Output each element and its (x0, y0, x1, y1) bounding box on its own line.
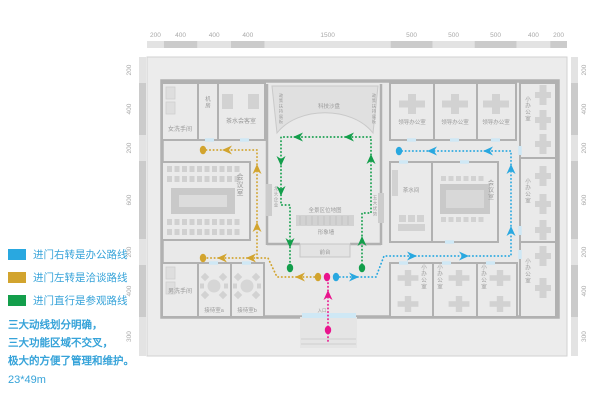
room-label-server_room: 机房 (205, 95, 211, 110)
floorplan-page: 2004004004001500500500500400200200200400… (0, 0, 600, 400)
seat (167, 166, 172, 172)
ruler-segment (571, 239, 578, 265)
room-label-tea_guest: 茶水会客室 (226, 117, 256, 125)
chair (449, 176, 454, 181)
seat (182, 229, 187, 235)
ruler-segment (550, 41, 567, 48)
seat (235, 229, 240, 235)
route-endpoint (325, 326, 331, 335)
ruler-segment (475, 41, 517, 48)
desk (497, 270, 503, 286)
room-label-men_wc: 男洗手间 (168, 287, 192, 295)
desk (535, 253, 551, 259)
desk (451, 94, 459, 114)
chair (449, 217, 454, 222)
ruler-segment (571, 161, 578, 239)
conference-table (446, 190, 484, 208)
chair (441, 176, 446, 181)
route-endpoint (333, 273, 339, 282)
seat (235, 219, 240, 225)
ruler-segment (571, 135, 578, 161)
seat (227, 219, 232, 225)
sofa (248, 94, 259, 109)
route-endpoint (315, 273, 321, 282)
dim-label-right: 400 (581, 103, 588, 114)
room-label-reception_a: 接待室a (204, 306, 225, 314)
room-label-tea_room: 茶水间 (403, 186, 420, 194)
desk (535, 227, 551, 233)
five-advantages-panel (378, 193, 384, 223)
room-tea_guest (218, 83, 265, 140)
ruler-segment (571, 57, 578, 83)
room-label-small_bottom_3: 小办公室 (481, 263, 487, 291)
negotiation-route-swatch (8, 272, 26, 283)
room-label-leader_3: 领导办公室 (482, 118, 510, 126)
room-label-small_bottom_1: 小办公室 (421, 263, 427, 291)
ruler-segment (433, 41, 475, 48)
seat (235, 166, 240, 172)
hall-label-five_advantages: 五大优势 (373, 195, 378, 218)
route-endpoint (200, 146, 206, 155)
sofa (399, 215, 406, 222)
hall-label-image_wall: 形象墙 (318, 228, 335, 236)
legend-item-office: 进门右转是办公路线 (8, 247, 148, 262)
dim-label-top: 400 (175, 32, 186, 39)
chair (471, 176, 476, 181)
room-label-small_right_top: 小办公室 (525, 95, 531, 123)
seat (212, 219, 217, 225)
desk (535, 285, 551, 291)
wc-stall (166, 87, 175, 99)
legend-label: 进门右转是办公路线 (33, 247, 128, 262)
main-entrance-door (302, 313, 356, 318)
dim-label-right: 400 (581, 285, 588, 296)
dim-label-right: 600 (581, 194, 588, 205)
legend-label: 进门直行是参观路线 (33, 293, 128, 308)
desk (535, 173, 551, 179)
room-label-small_bottom_2: 小办公室 (437, 263, 443, 291)
dim-label-top: 500 (490, 32, 501, 39)
ruler-segment (147, 41, 164, 48)
seat (190, 219, 195, 225)
desk (405, 270, 411, 286)
route-legend: 进门右转是办公路线 进门左转是洽谈路线 进门直行是参观路线 三大动线划分明确， … (8, 247, 148, 386)
room-label-meeting_right: 会议室 (488, 179, 494, 201)
ruler-segment (265, 41, 391, 48)
legend-item-tour: 进门直行是参观路线 (8, 293, 148, 308)
dim-label-left: 200 (126, 142, 133, 153)
chair (479, 176, 484, 181)
hall-label-front_desk: 前台 (319, 248, 331, 256)
route-endpoint (200, 254, 206, 263)
note-line: 三大动线划分明确， (8, 316, 148, 334)
leading-companies-panel (266, 184, 272, 216)
seat (167, 229, 172, 235)
seat (220, 219, 225, 225)
chair (456, 217, 461, 222)
dim-label-left: 400 (126, 103, 133, 114)
route-endpoint (324, 273, 330, 282)
chair (441, 217, 446, 222)
room-label-reception_b: 接待室b (237, 306, 257, 314)
legend-item-negotiation: 进门左转是洽谈路线 (8, 270, 148, 285)
desk (456, 296, 462, 312)
note-line: 三大功能区域不交叉， (8, 334, 148, 352)
desk (535, 141, 551, 147)
seat (167, 176, 172, 182)
seat (175, 176, 180, 182)
wc-stall (166, 267, 175, 279)
chair (224, 284, 228, 289)
dim-label-top: 400 (209, 32, 220, 39)
seat (205, 166, 210, 172)
legend-label: 进门左转是洽谈路线 (33, 270, 128, 285)
ruler-segment (571, 265, 578, 317)
seat (212, 166, 217, 172)
ruler-segment (139, 57, 146, 83)
wc-stall (166, 102, 175, 114)
office-route-swatch (8, 249, 26, 260)
seat (182, 166, 187, 172)
dim-label-left: 600 (126, 194, 133, 205)
ruler-segment (571, 317, 578, 356)
desk (535, 92, 551, 98)
sofa (408, 215, 415, 222)
plan-notes: 三大动线划分明确， 三大功能区域不交叉， 极大的方便了管理和维护。 (8, 316, 148, 370)
room-label-small_right_bottom: 小办公室 (525, 257, 531, 285)
ruler-segment (571, 83, 578, 135)
sofa (398, 224, 425, 231)
seat (205, 229, 210, 235)
sofa (417, 215, 424, 222)
dim-label-right: 200 (581, 246, 588, 257)
chair (471, 217, 476, 222)
desk (408, 94, 416, 114)
seat (212, 176, 217, 182)
dim-label-top: 200 (150, 32, 161, 39)
chair (456, 176, 461, 181)
seat (197, 219, 202, 225)
dim-label-top: 500 (448, 32, 459, 39)
seat (197, 166, 202, 172)
route-endpoint (287, 264, 293, 273)
route-endpoint (396, 147, 402, 156)
dim-label-top: 400 (528, 32, 539, 39)
seat (190, 229, 195, 235)
ruler-segment (164, 41, 198, 48)
desk (405, 296, 411, 312)
seat (190, 166, 195, 172)
hall-label-location_map: 全景区位地图 (308, 206, 342, 214)
seat (182, 176, 187, 182)
seat (175, 219, 180, 225)
seat (182, 219, 187, 225)
seat (197, 229, 202, 235)
desk (492, 94, 500, 114)
desk (456, 270, 462, 286)
dim-label-top: 1500 (320, 32, 335, 39)
conference-table (179, 195, 227, 207)
room-label-leader_2: 领导办公室 (441, 118, 469, 126)
room-label-women_wc: 女洗手间 (168, 125, 192, 133)
dim-label-right: 300 (581, 331, 588, 342)
seat (220, 229, 225, 235)
seat (205, 219, 210, 225)
seat (220, 176, 225, 182)
dim-label-top: 400 (242, 32, 253, 39)
seat (205, 176, 210, 182)
room-label-small_right_mid: 小办公室 (525, 177, 531, 205)
seat (175, 166, 180, 172)
seat (220, 166, 225, 172)
seat (227, 229, 232, 235)
room-label-leader_1: 领导办公室 (398, 118, 426, 126)
note-line: 极大的方便了管理和维护。 (8, 352, 148, 370)
location-map-wall (296, 215, 354, 226)
ruler-segment (197, 41, 231, 48)
dim-label-right: 200 (581, 64, 588, 75)
sofa (222, 94, 233, 109)
seat (175, 229, 180, 235)
ruler-segment (139, 135, 146, 161)
room-server_room (198, 83, 218, 140)
ruler-segment (139, 161, 146, 239)
ruler-segment (231, 41, 265, 48)
dim-label-top: 500 (406, 32, 417, 39)
ruler-segment (391, 41, 433, 48)
hall-label-tech_sandbox: 科技沙盘 (318, 102, 341, 110)
chair (200, 284, 204, 289)
round-table (208, 280, 221, 293)
dim-label-right: 200 (581, 142, 588, 153)
seat (167, 219, 172, 225)
seat (227, 166, 232, 172)
desk (535, 117, 551, 123)
seat (212, 229, 217, 235)
ruler-segment (517, 41, 551, 48)
room-label-meeting_left: 会议室 (237, 172, 244, 197)
plan-size-label: 23*49m (8, 374, 148, 386)
seat (227, 176, 232, 182)
dim-label-left: 200 (126, 64, 133, 75)
seat (190, 176, 195, 182)
chair (464, 176, 469, 181)
chair (464, 217, 469, 222)
ruler-segment (139, 83, 146, 135)
cabinet (392, 170, 398, 196)
chair (233, 284, 237, 289)
route-endpoint (359, 264, 365, 273)
seat (197, 176, 202, 182)
chair (257, 284, 261, 289)
desk (497, 296, 503, 312)
desk (535, 201, 551, 207)
tour-route-swatch (8, 295, 26, 306)
round-table (241, 280, 254, 293)
dim-label-top: 200 (553, 32, 564, 39)
chair (479, 217, 484, 222)
